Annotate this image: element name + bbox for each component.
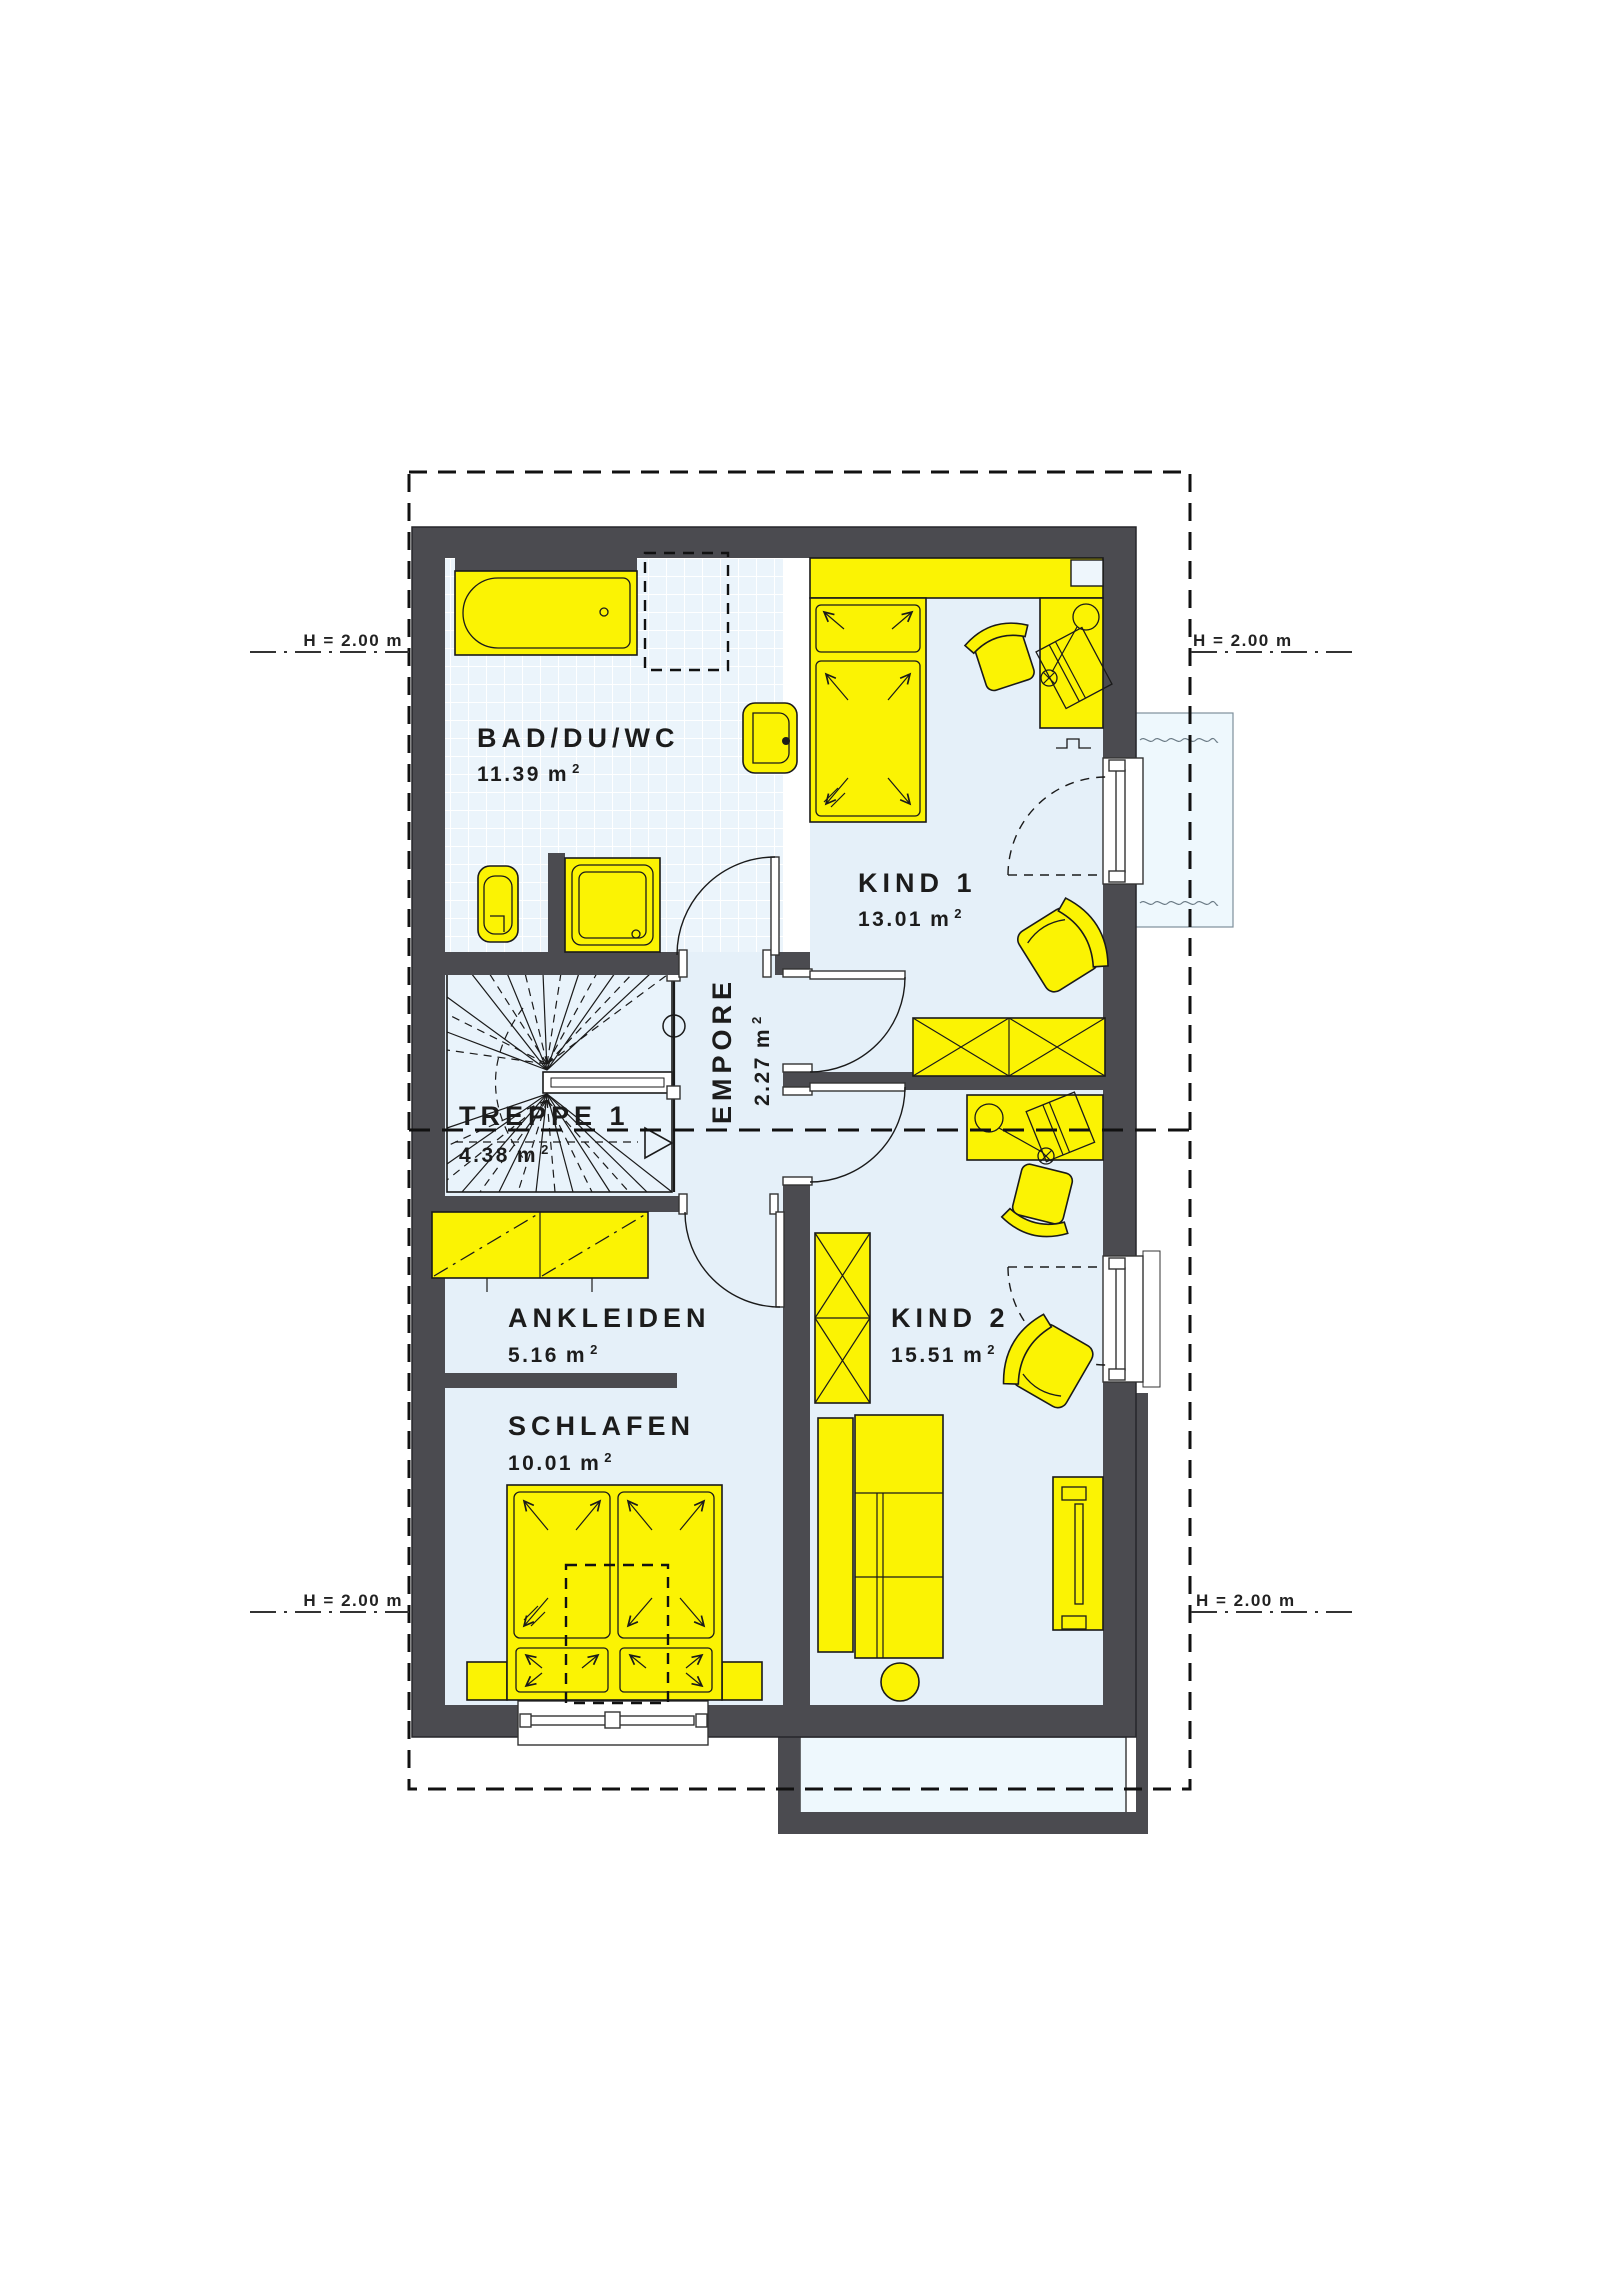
shower xyxy=(565,858,660,952)
svg-text:H = 2.00 m: H = 2.00 m xyxy=(303,631,403,650)
height-marker-top-right: H = 2.00 m xyxy=(1191,631,1352,652)
svg-text:EMPORE: EMPORE xyxy=(707,977,737,1124)
svg-text:11.39m2: 11.39m2 xyxy=(477,761,582,786)
kind2-bed xyxy=(818,1415,943,1658)
svg-text:H = 2.00 m: H = 2.00 m xyxy=(1193,631,1293,650)
svg-text:TREPPE 1: TREPPE 1 xyxy=(459,1101,630,1131)
svg-text:13.01m2: 13.01m2 xyxy=(858,906,964,931)
svg-text:4.38m2: 4.38m2 xyxy=(459,1142,551,1167)
kind2-window xyxy=(1103,1251,1160,1387)
svg-text:ANKLEIDEN: ANKLEIDEN xyxy=(508,1303,711,1333)
double-bed xyxy=(467,1485,762,1703)
kind2-stool xyxy=(881,1663,919,1701)
svg-text:2.27m2: 2.27m2 xyxy=(749,1014,774,1106)
schlafen-window xyxy=(518,1701,708,1745)
kind1-window-overhang xyxy=(1136,713,1233,927)
svg-text:KIND 1: KIND 1 xyxy=(858,868,977,898)
height-marker-top-left: H = 2.00 m xyxy=(250,631,409,652)
floor-plan-canvas: H = 2.00 m H = 2.00 m H = 2.00 m H = 2.0… xyxy=(0,0,1600,2264)
kind2-desk xyxy=(967,1092,1103,1164)
floor-plan-page: H = 2.00 m H = 2.00 m H = 2.00 m H = 2.0… xyxy=(0,0,1600,2264)
kind1-bed xyxy=(810,598,926,822)
svg-text:SCHLAFEN: SCHLAFEN xyxy=(508,1411,695,1441)
height-marker-bottom-right: H = 2.00 m xyxy=(1191,1591,1352,1612)
kind1-desk xyxy=(1036,598,1112,728)
svg-text:5.16m2: 5.16m2 xyxy=(508,1342,600,1367)
svg-text:H = 2.00 m: H = 2.00 m xyxy=(303,1591,403,1610)
kind2-tv-board xyxy=(1053,1477,1103,1630)
kind1-window xyxy=(1103,758,1143,884)
balcony xyxy=(800,1737,1126,1813)
washbasin xyxy=(743,703,797,773)
svg-text:15.51m2: 15.51m2 xyxy=(891,1342,997,1367)
svg-text:H = 2.00 m: H = 2.00 m xyxy=(1196,1591,1296,1610)
kind1-sideboard xyxy=(913,1018,1105,1076)
svg-text:10.01m2: 10.01m2 xyxy=(508,1450,614,1475)
bathtub xyxy=(455,571,637,655)
svg-text:KIND 2: KIND 2 xyxy=(891,1303,1010,1333)
kind2-wardrobe xyxy=(815,1233,870,1403)
svg-text:BAD/DU/WC: BAD/DU/WC xyxy=(477,723,679,753)
kind1-wardrobe-top xyxy=(810,558,1103,598)
height-marker-bottom-left: H = 2.00 m xyxy=(250,1591,409,1612)
toilet xyxy=(478,866,518,942)
